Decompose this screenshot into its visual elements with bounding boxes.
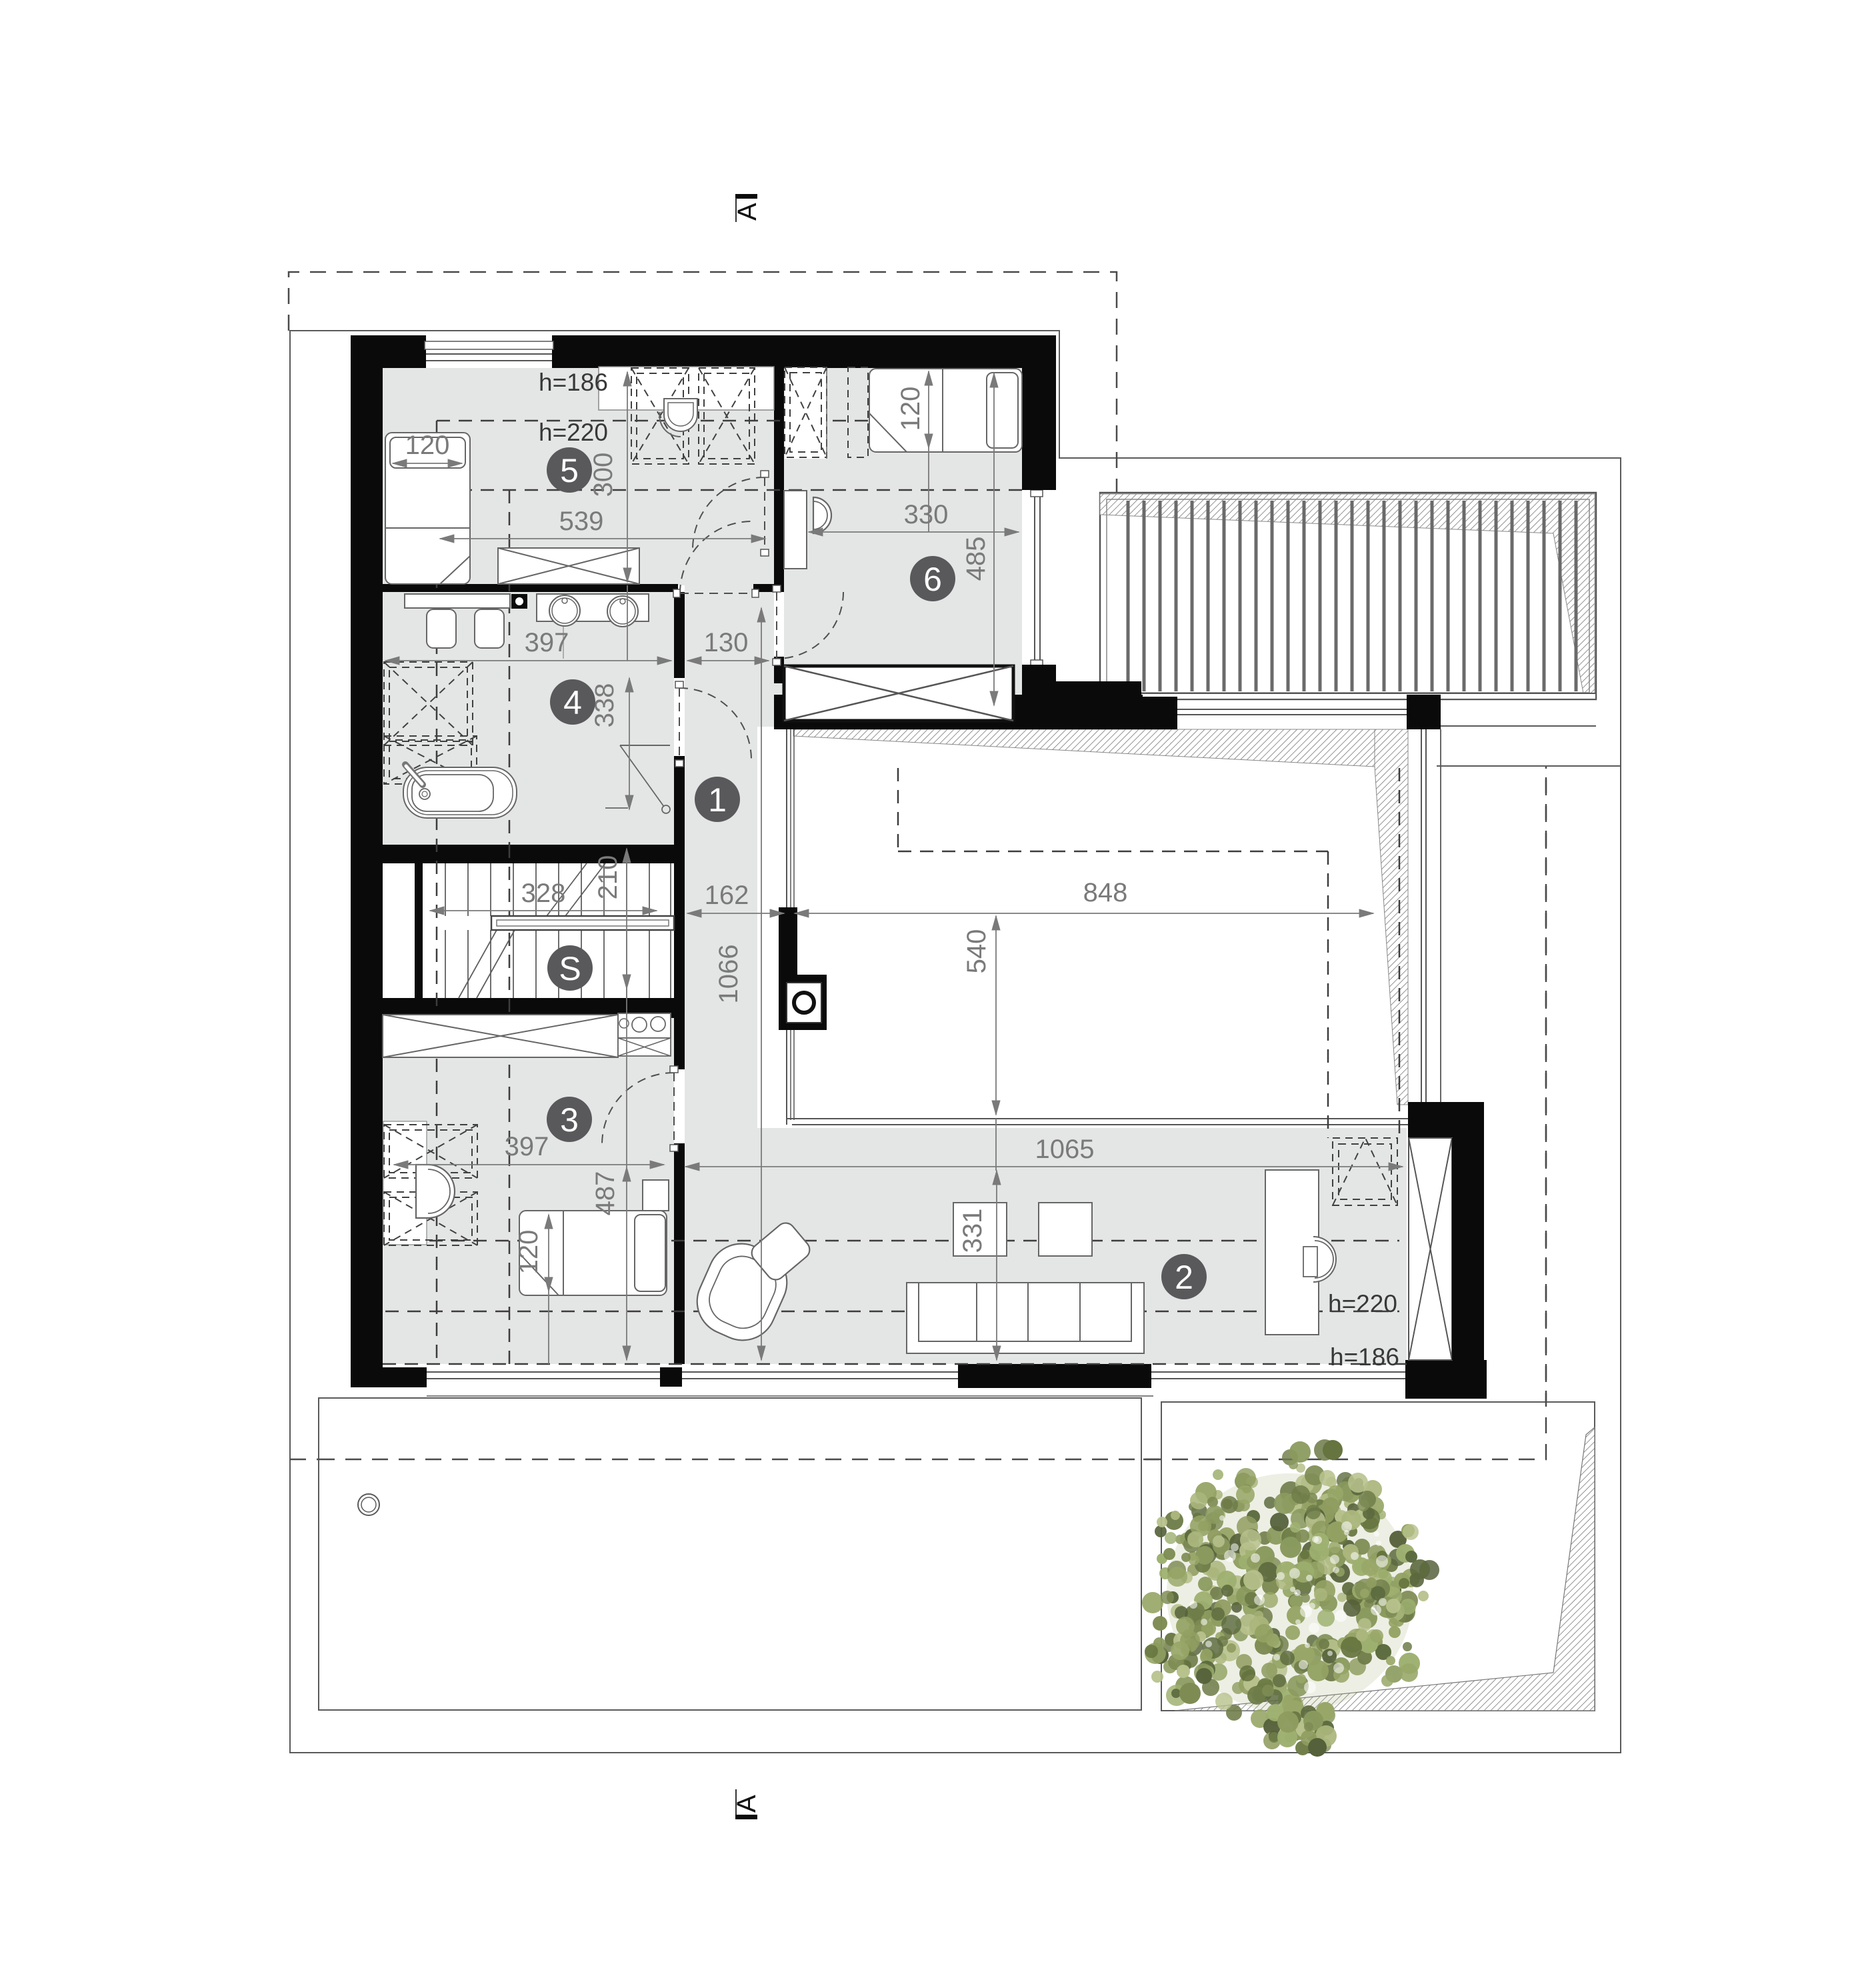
- svg-text:120: 120: [514, 1230, 543, 1275]
- svg-text:S: S: [559, 950, 581, 987]
- svg-text:1066: 1066: [714, 945, 743, 1004]
- svg-text:h=186: h=186: [1330, 1343, 1399, 1371]
- svg-text:4: 4: [563, 684, 582, 721]
- svg-text:A: A: [733, 203, 762, 221]
- svg-text:397: 397: [505, 1132, 549, 1161]
- svg-text:h=186: h=186: [539, 369, 608, 396]
- svg-text:210: 210: [593, 855, 623, 900]
- svg-text:331: 331: [958, 1209, 987, 1253]
- svg-text:162: 162: [705, 881, 749, 910]
- svg-text:1: 1: [708, 781, 727, 819]
- svg-text:300: 300: [589, 453, 618, 497]
- svg-text:540: 540: [962, 929, 991, 974]
- svg-text:539: 539: [559, 507, 604, 536]
- svg-text:1065: 1065: [1035, 1135, 1095, 1164]
- svg-text:487: 487: [591, 1171, 620, 1216]
- svg-text:485: 485: [961, 537, 991, 581]
- svg-text:2: 2: [1175, 1259, 1193, 1296]
- svg-text:848: 848: [1083, 878, 1128, 907]
- svg-text:A: A: [732, 1795, 761, 1813]
- svg-text:h=220: h=220: [539, 419, 608, 446]
- svg-text:3: 3: [560, 1101, 579, 1139]
- svg-text:130: 130: [704, 628, 749, 657]
- svg-text:397: 397: [525, 628, 569, 657]
- svg-text:h=220: h=220: [1328, 1290, 1397, 1317]
- svg-text:120: 120: [896, 387, 925, 431]
- svg-text:328: 328: [521, 879, 566, 908]
- svg-text:330: 330: [904, 500, 949, 529]
- svg-text:5: 5: [560, 452, 579, 489]
- svg-text:120: 120: [405, 431, 450, 460]
- svg-text:6: 6: [923, 561, 942, 598]
